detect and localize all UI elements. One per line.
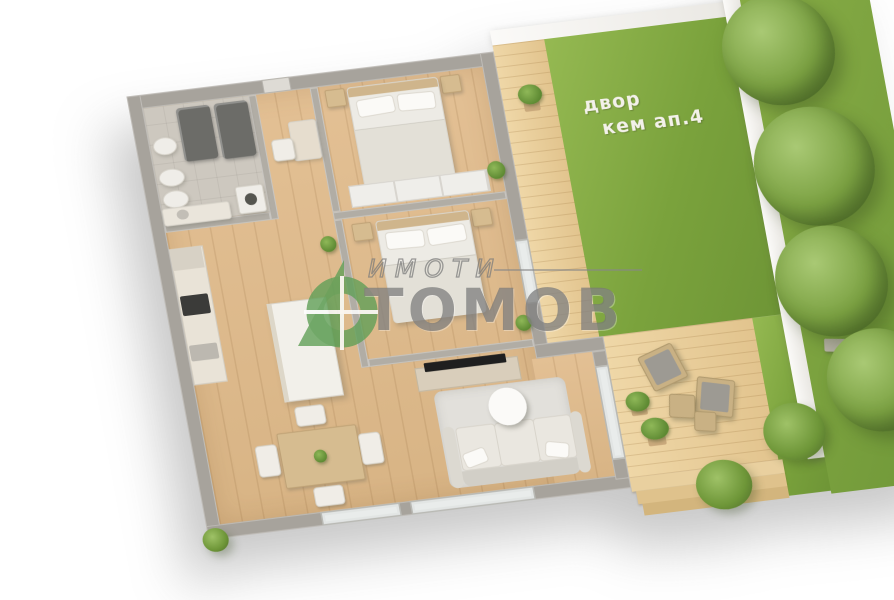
watermark: ИМОТИ ТОМОВ: [288, 248, 648, 360]
cooktop: [180, 293, 211, 316]
armchair-cushion: [644, 349, 682, 386]
bed-pillow: [426, 223, 468, 247]
floorplan-render: двор кем ап.4: [0, 0, 894, 600]
dining-chair: [313, 484, 346, 507]
dining-chair: [294, 404, 327, 427]
nightstand: [351, 222, 374, 242]
desk-chair: [271, 138, 297, 162]
outdoor-side-table: [669, 394, 695, 419]
dining-table: [276, 424, 366, 489]
outdoor-side-table: [694, 411, 716, 432]
armchair-cushion: [700, 382, 730, 413]
potted-plant: [624, 390, 653, 419]
sofa-pillow: [545, 441, 570, 459]
watermark-divider: [494, 269, 642, 271]
bed: [346, 77, 456, 189]
watermark-brand-main: ТОМОВ: [364, 276, 624, 344]
bed-pillow: [396, 91, 437, 112]
kitchen-tall-unit: [169, 246, 205, 272]
nightstand: [439, 74, 462, 94]
plant-foliage: [639, 416, 671, 441]
nightstand: [470, 207, 493, 227]
table-centerpiece: [313, 449, 328, 463]
washer-door: [244, 193, 258, 206]
potted-plant: [516, 83, 545, 114]
nightstand: [324, 88, 347, 108]
bed-pillow: [355, 94, 397, 118]
washing-machine: [235, 184, 268, 215]
kitchen-sink: [189, 342, 220, 361]
potted-plant: [639, 416, 672, 449]
